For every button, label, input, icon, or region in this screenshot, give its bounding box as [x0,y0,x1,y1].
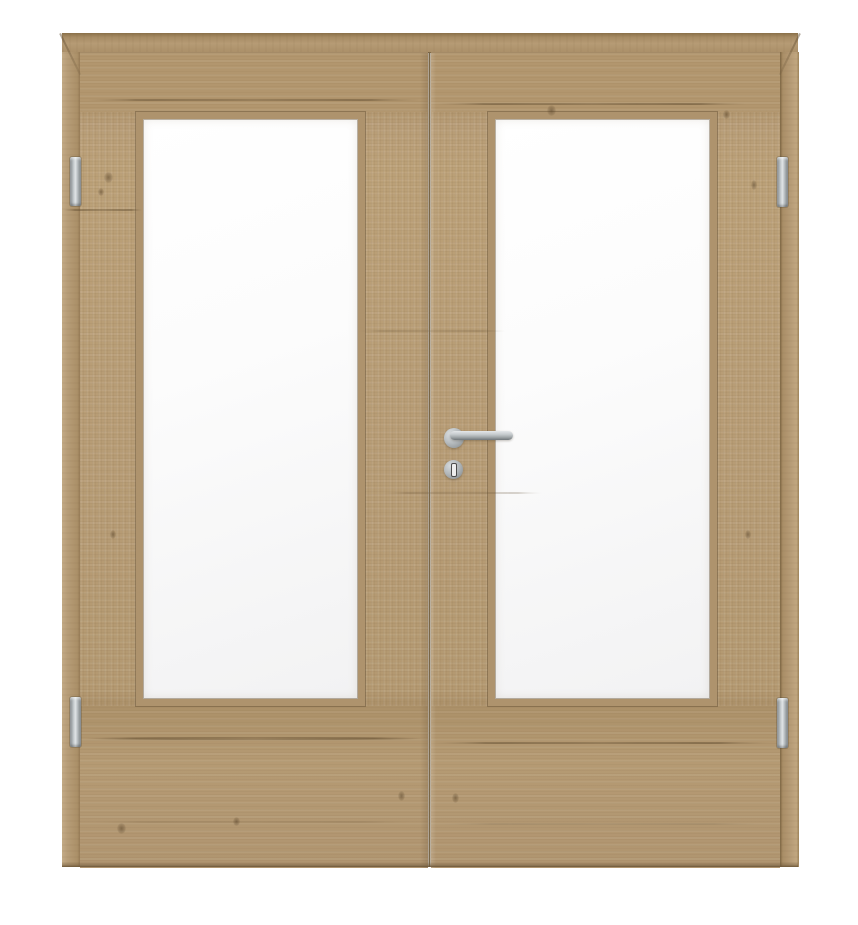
door-bottom-edge [62,862,798,867]
keyhole-slot-icon [451,463,457,477]
wood-grain-crack [63,209,143,211]
wood-grain-crack [437,103,747,105]
wood-stile-grain [80,112,136,706]
wood-grain-crack [442,823,762,825]
hinge-top-left [70,157,81,206]
glass-panel-right [488,112,717,706]
wood-knot [751,180,757,190]
glass-panel-left [136,112,365,706]
wood-stile-grain [717,112,780,706]
wood-grain-crack [85,737,425,740]
wood-stile-grain [431,112,488,706]
hinge-bottom-right [777,698,788,748]
wood-grain-crack [358,330,506,332]
wood-knot [117,823,126,834]
wood-knot [745,530,751,539]
wood-grain-crack [86,99,421,101]
product-photo-stage [0,0,858,925]
hinge-top-right [777,157,788,207]
wood-knot [104,172,113,183]
wood-knot [723,110,730,119]
lever-handle [450,431,513,440]
wood-grain-crack [382,492,542,494]
double-door-unit [62,33,798,867]
door-leaf-right [431,52,780,868]
wood-knot [233,817,240,826]
wood-knot [452,793,459,803]
wood-knot [398,791,405,801]
door-leaf-left [80,52,428,868]
wood-knot [110,530,116,539]
wood-stile-grain [365,112,428,706]
door-center-gap [428,52,431,867]
wood-knot [98,188,104,196]
hinge-bottom-left [70,697,81,747]
wood-knot [547,105,556,116]
wood-grain-crack [92,821,412,823]
wood-grain-crack [435,742,770,744]
door-frame-head [62,33,798,53]
keyhole-rosette [444,460,463,479]
